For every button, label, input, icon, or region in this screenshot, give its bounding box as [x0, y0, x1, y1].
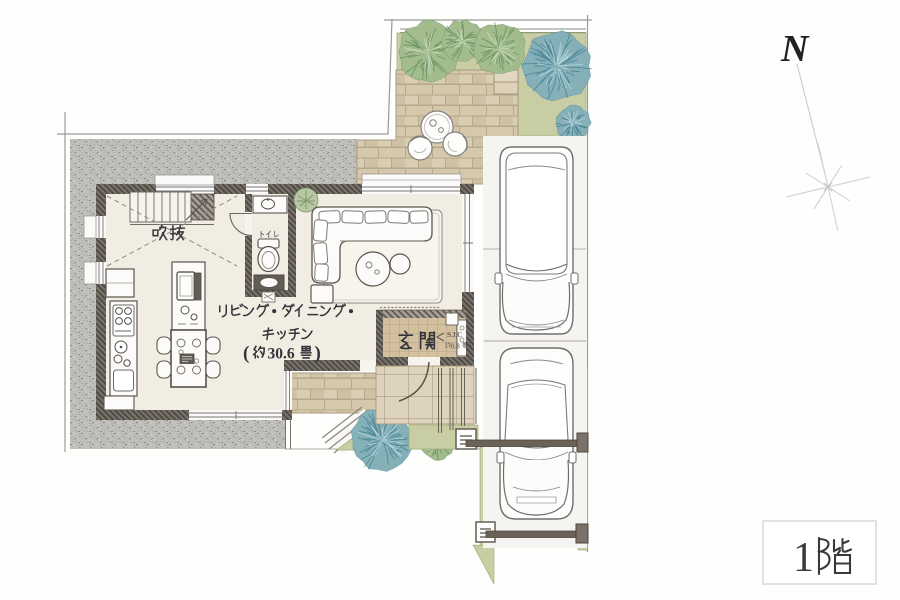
svg-text:(: (: [243, 343, 249, 364]
svg-text:S.I.C: S.I.C: [447, 330, 462, 339]
svg-text:0.8: 0.8: [451, 343, 460, 351]
svg-text:): ): [315, 343, 321, 364]
svg-text:1: 1: [793, 535, 814, 581]
svg-text:N: N: [780, 28, 810, 70]
svg-text:30.6: 30.6: [268, 346, 295, 363]
